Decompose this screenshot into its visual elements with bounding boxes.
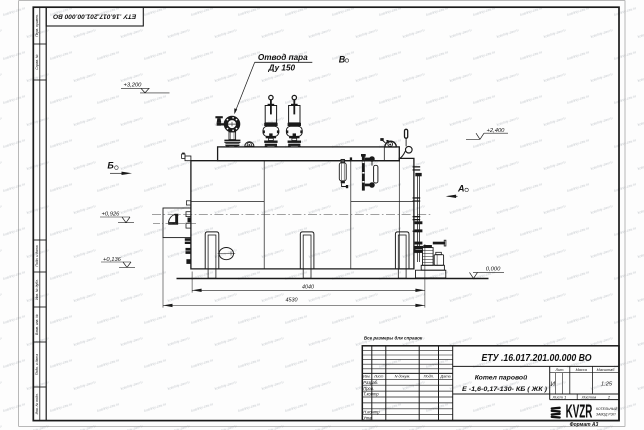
svg-text:1:25: 1:25 bbox=[601, 382, 613, 388]
svg-text:Разраб.: Разраб. bbox=[363, 380, 378, 385]
svg-text:В: В bbox=[339, 55, 346, 65]
svg-text:А: А bbox=[457, 184, 465, 194]
svg-text:Справ. №: Справ. № bbox=[35, 54, 39, 70]
svg-text:Изм.: Изм. bbox=[363, 375, 371, 379]
svg-text:0,000: 0,000 bbox=[486, 266, 501, 272]
svg-text:Масса: Масса bbox=[576, 368, 587, 372]
svg-text:Лист 1: Лист 1 bbox=[552, 394, 567, 399]
svg-text:КОТЕЛЬНЫЙ: КОТЕЛЬНЫЙ bbox=[596, 407, 618, 411]
svg-text:Листов: Листов bbox=[581, 394, 597, 399]
svg-text:KVZR: KVZR bbox=[566, 400, 593, 421]
svg-text:Подп.: Подп. bbox=[424, 374, 434, 379]
svg-text:ЕТУ .16.017.201.00.000 ВО: ЕТУ .16.017.201.00.000 ВО bbox=[52, 13, 136, 20]
svg-text:Формат А3: Формат А3 bbox=[570, 422, 599, 428]
svg-text:+3,200: +3,200 bbox=[124, 83, 143, 89]
svg-text:Дата: Дата bbox=[439, 374, 451, 379]
svg-text:Инв. № дубл.: Инв. № дубл. bbox=[35, 279, 39, 300]
svg-text:Н.контр: Н.контр bbox=[363, 409, 380, 414]
svg-text:Перв. примен.: Перв. примен. bbox=[35, 14, 39, 37]
svg-text:Лист: Лист bbox=[373, 375, 383, 379]
svg-text:Б: Б bbox=[107, 161, 114, 171]
svg-text:Е -1,6-0,17-130- КБ ( ЖК ): Е -1,6-0,17-130- КБ ( ЖК ) bbox=[462, 386, 547, 393]
svg-text:ЕТУ .16.017.201.00.000 ВО: ЕТУ .16.017.201.00.000 ВО bbox=[482, 353, 592, 364]
svg-text:И: И bbox=[550, 381, 555, 388]
svg-text:ЗАВОД РЭП: ЗАВОД РЭП bbox=[596, 412, 616, 416]
svg-text:Масштаб: Масштаб bbox=[597, 368, 616, 372]
svg-text:Пров.: Пров. bbox=[363, 386, 374, 391]
svg-text:Котел паровой: Котел паровой bbox=[475, 374, 528, 382]
svg-text:Ду 150: Ду 150 bbox=[267, 63, 295, 72]
svg-text:Отвод пара: Отвод пара bbox=[258, 53, 308, 62]
svg-text:Все размеры для справок: Все размеры для справок bbox=[364, 335, 423, 340]
svg-text:Взам. инв. №: Взам. инв. № bbox=[35, 314, 39, 335]
svg-text:Лит.: Лит. bbox=[555, 368, 565, 372]
svg-text:Инв. № подл.: Инв. № подл. bbox=[35, 393, 39, 414]
svg-text:Утв.: Утв. bbox=[363, 415, 372, 420]
svg-text:N докум.: N докум. bbox=[395, 374, 411, 379]
svg-text:+0,926: +0,926 bbox=[102, 211, 121, 217]
svg-text:Т.контр: Т.контр bbox=[363, 392, 379, 397]
svg-text:4040: 4040 bbox=[302, 284, 314, 290]
svg-text:4530: 4530 bbox=[286, 298, 298, 304]
svg-text:Подп. и дата: Подп. и дата bbox=[35, 245, 39, 266]
svg-text:Подп. и дата: Подп. и дата bbox=[35, 354, 39, 375]
